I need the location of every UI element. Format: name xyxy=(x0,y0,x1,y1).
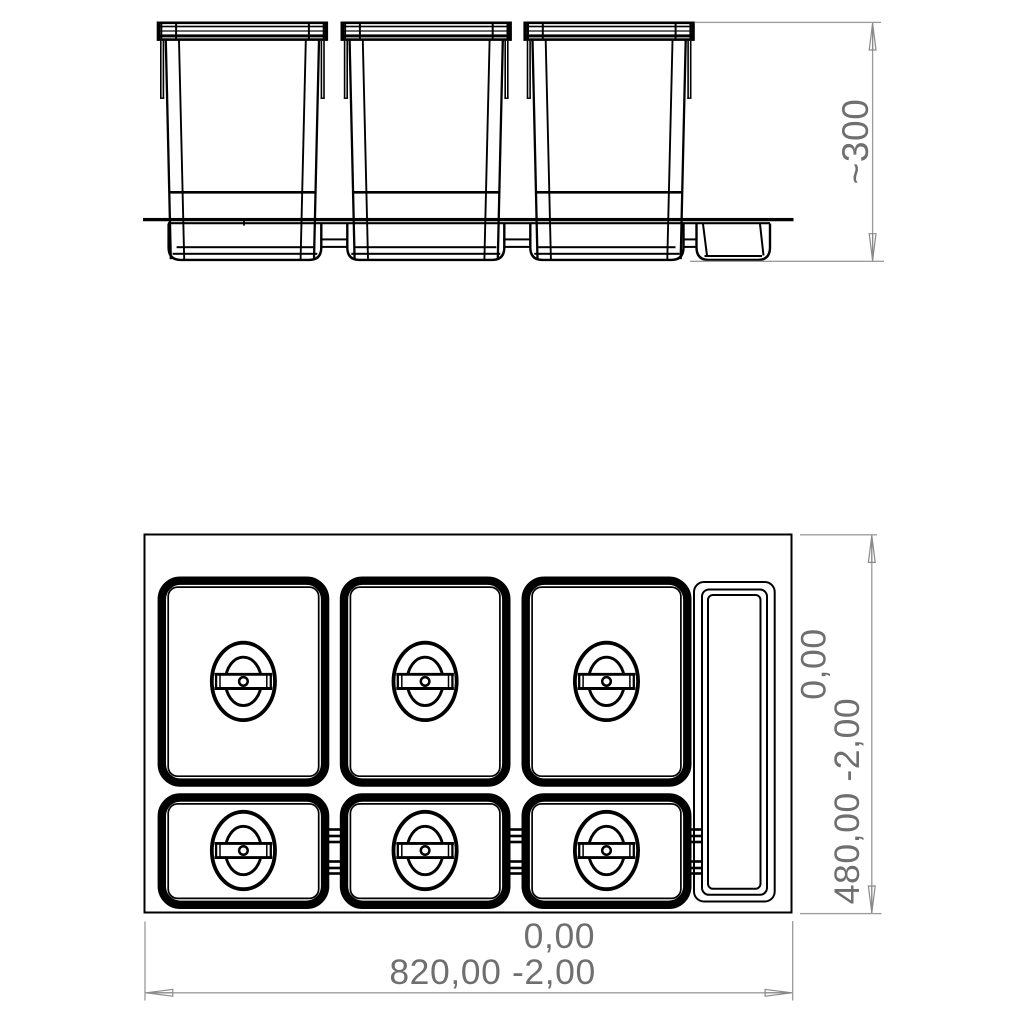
svg-text:0,00: 0,00 xyxy=(794,628,834,700)
svg-text:820,00 -2,00: 820,00 -2,00 xyxy=(389,952,596,992)
svg-text:~300: ~300 xyxy=(835,99,876,185)
svg-text:480,00 -2,00: 480,00 -2,00 xyxy=(827,698,867,905)
svg-text:0,00: 0,00 xyxy=(524,916,596,956)
